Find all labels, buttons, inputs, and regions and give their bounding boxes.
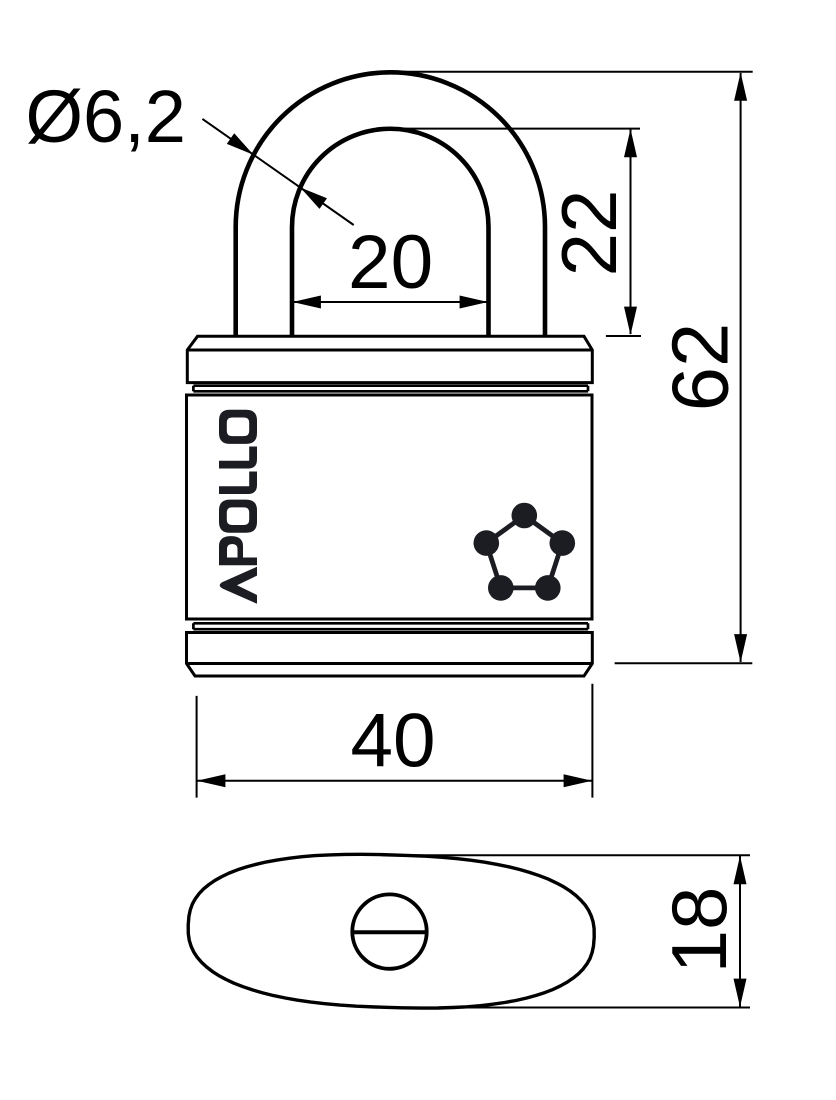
svg-text:Ø6,2: Ø6,2 xyxy=(26,75,186,158)
svg-text:62: 62 xyxy=(656,323,745,411)
svg-text:40: 40 xyxy=(350,699,435,784)
svg-text:18: 18 xyxy=(655,887,743,974)
svg-text:22: 22 xyxy=(545,190,633,277)
svg-text:20: 20 xyxy=(348,220,433,305)
